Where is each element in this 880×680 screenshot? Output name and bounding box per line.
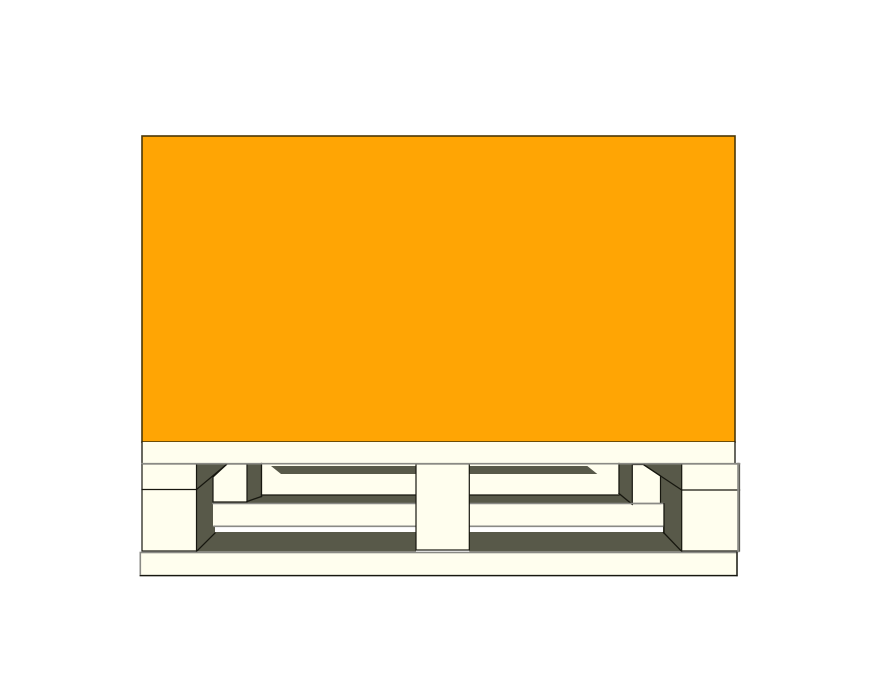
bottom-lead-board-face [140,553,737,576]
top-lead-board-face [142,442,735,464]
left-pocket-upper-stringer-board [262,474,417,495]
left-pocket-lower-stringer-board [213,504,416,527]
right-pocket-lower-stringer-board [469,504,664,527]
left-fork-pocket [197,464,417,552]
bottom-lead-board [140,553,737,576]
left-block [142,464,197,551]
pallet-render-canvas [0,0,880,680]
right-block [682,464,740,551]
right-pocket-upper-stringer-board [469,474,619,495]
right-fork-pocket [469,464,681,552]
right-pocket-light-gap [469,527,663,533]
cargo-box [142,136,735,442]
top-lead-board [142,442,735,465]
center-block [416,464,469,550]
left-pocket-light-gap [215,527,416,533]
pallet-with-load-illustration [0,0,880,680]
